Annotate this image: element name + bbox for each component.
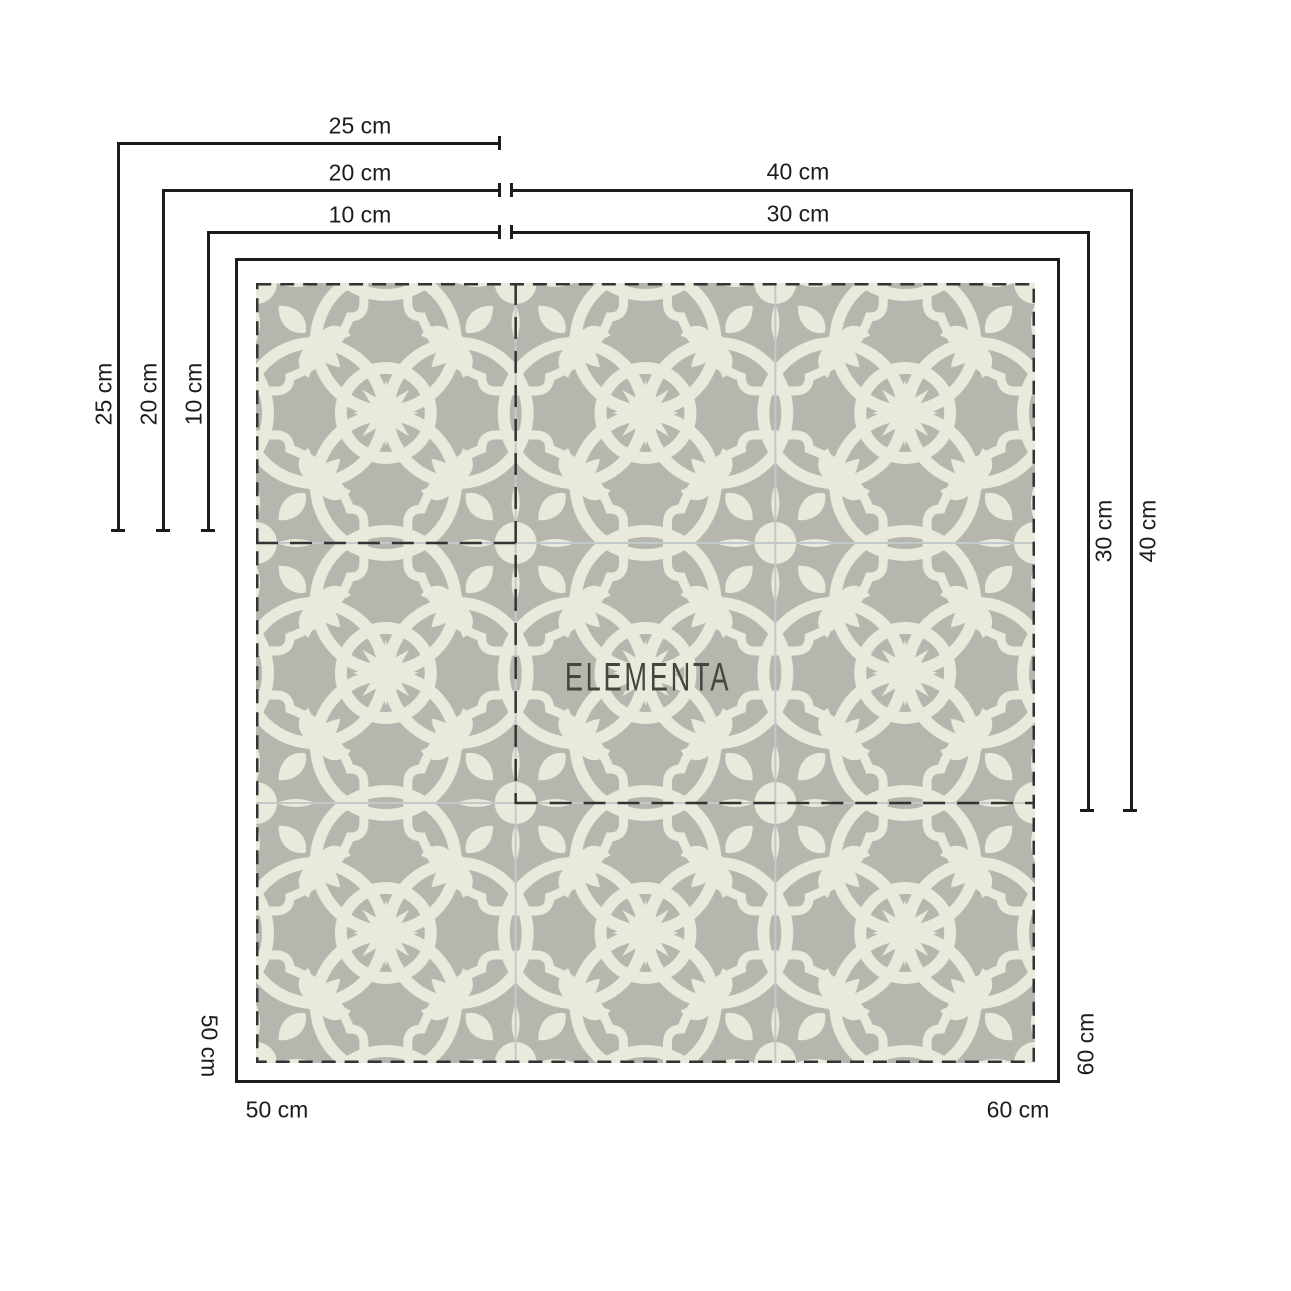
label-left-25cm: 25 cm [93,363,116,426]
dim-25-end-tick [498,136,501,150]
label-top-10cm: 10 cm [329,204,392,227]
tile-size-diagram: ELEMENTA 25 cm 20 cm 10 cm 40 cm 30 cm 2… [0,0,1291,1291]
dim-25-bottom-tick [111,529,125,532]
dim-30-line-vertical [1087,231,1090,812]
label-top-25cm: 25 cm [329,115,392,138]
dim-20-bottom-tick [156,529,170,532]
label-bottom-right-60cm-horizontal: 60 cm [987,1099,1050,1122]
dim-25-line-horizontal [118,142,499,145]
label-left-20cm: 20 cm [138,363,161,426]
dim-40-bottom-tick [1123,809,1137,812]
label-top-40cm: 40 cm [767,161,830,184]
dim-30-bottom-tick [1080,809,1094,812]
label-right-30cm: 30 cm [1093,500,1116,563]
dim-10-line-vertical [207,231,210,532]
label-top-30cm: 30 cm [767,203,830,226]
dim-40-line-horizontal [511,189,1132,192]
label-bottom-left-50cm-horizontal: 50 cm [246,1099,309,1122]
label-bottom-right-60cm-vertical: 60 cm [1075,1013,1098,1076]
dim-10-bottom-tick [201,529,215,532]
label-bottom-left-50cm-vertical: 50 cm [198,1015,221,1078]
dim-25-line-vertical [117,142,120,532]
dim-30-line-horizontal [511,231,1089,234]
dim-40-line-vertical [1130,189,1133,812]
dim-10-line-horizontal [208,231,499,234]
dim-20-end-tick [498,183,501,197]
label-right-40cm: 40 cm [1137,500,1160,563]
dim-20-line-vertical [162,189,165,532]
label-left-10cm: 10 cm [183,363,206,426]
label-top-20cm: 20 cm [329,162,392,185]
brand-watermark: ELEMENTA [565,656,731,701]
dim-10-end-tick [498,225,501,239]
dim-20-line-horizontal [163,189,499,192]
